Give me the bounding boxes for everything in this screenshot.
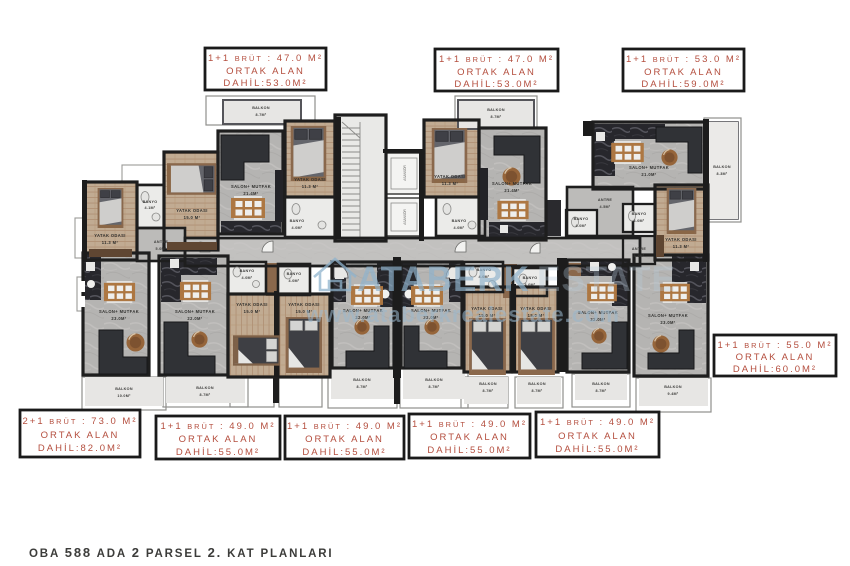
- svg-text:BALKON: BALKON: [353, 378, 371, 382]
- svg-text:ORTAK ALAN: ORTAK ALAN: [644, 67, 723, 78]
- svg-text:4.0M²: 4.0M²: [576, 224, 587, 228]
- svg-text:BANYO: BANYO: [632, 212, 647, 216]
- svg-text:BALKON: BALKON: [196, 386, 214, 390]
- svg-text:8.7M²: 8.7M²: [491, 115, 502, 119]
- svg-text:8.7M²: 8.7M²: [357, 385, 368, 389]
- svg-text:1+1 BRÜT : 49.0 M²: 1+1 BRÜT : 49.0 M²: [287, 421, 402, 432]
- svg-text:ORTAK ALAN: ORTAK ALAN: [41, 430, 120, 441]
- svg-text:BANYO: BANYO: [574, 217, 589, 221]
- svg-text:8.7M²: 8.7M²: [483, 389, 494, 393]
- svg-text:DAHİL:53.0M²: DAHİL:53.0M²: [223, 78, 307, 89]
- svg-text:2+1 BRÜT : 73.0 M²: 2+1 BRÜT : 73.0 M²: [22, 416, 137, 427]
- svg-text:DAHİL:59.0M²: DAHİL:59.0M²: [641, 79, 725, 90]
- svg-text:1+1 BRÜT : 47.0 M²: 1+1 BRÜT : 47.0 M²: [439, 54, 554, 65]
- svg-text:DAHİL:55.0M²: DAHİL:55.0M²: [555, 444, 639, 455]
- svg-text:DAHİL:82.0M²: DAHİL:82.0M²: [38, 443, 122, 454]
- svg-text:BALKON: BALKON: [664, 385, 682, 389]
- svg-text:www.ataberkrealestate.com: www.ataberkrealestate.com: [305, 302, 620, 327]
- svg-text:4.0M²: 4.0M²: [292, 226, 303, 230]
- svg-text:BALKON: BALKON: [425, 378, 443, 382]
- svg-text:ORTAK ALAN: ORTAK ALAN: [179, 434, 258, 445]
- svg-text:1+1 BRÜT : 49.0 M²: 1+1 BRÜT : 49.0 M²: [540, 417, 655, 428]
- svg-text:1+1 BRÜT : 47.0 M²: 1+1 BRÜT : 47.0 M²: [208, 53, 323, 64]
- svg-text:8.7M²: 8.7M²: [256, 113, 267, 117]
- svg-text:BALKON: BALKON: [713, 165, 731, 169]
- svg-text:OBA 588 ADA 2 PARSEL 2. KAT PL: OBA 588 ADA 2 PARSEL 2. KAT PLANLARI: [29, 545, 333, 560]
- svg-text:DAHİL:55.0M²: DAHİL:55.0M²: [427, 445, 511, 456]
- svg-text:DAHİL:55.0M²: DAHİL:55.0M²: [176, 447, 260, 458]
- svg-text:ANTRE: ANTRE: [632, 247, 646, 251]
- svg-text:ATABERK: ATABERK: [357, 260, 530, 299]
- svg-text:YATAK ODASI: YATAK ODASI: [434, 174, 466, 179]
- svg-text:YATAK ODASI: YATAK ODASI: [236, 302, 268, 307]
- svg-text:ORTAK ALAN: ORTAK ALAN: [305, 434, 384, 445]
- svg-text:4.1M²: 4.1M²: [145, 206, 156, 210]
- svg-text:DAHİL:53.0M²: DAHİL:53.0M²: [454, 79, 538, 90]
- svg-text:ORTAK ALAN: ORTAK ALAN: [558, 431, 637, 442]
- svg-text:SALON+ MUTFAK: SALON+ MUTFAK: [648, 313, 688, 318]
- svg-text:BANYO: BANYO: [287, 272, 302, 276]
- svg-text:22.0M²: 22.0M²: [187, 316, 202, 321]
- svg-text:21.4M²: 21.4M²: [243, 191, 258, 196]
- svg-text:11.3 M²: 11.3 M²: [302, 184, 319, 189]
- svg-text:23.0M²: 23.0M²: [111, 316, 126, 321]
- svg-text:ESTATE: ESTATE: [537, 260, 676, 299]
- svg-text:15.0 M²: 15.0 M²: [184, 215, 201, 220]
- svg-text:1+1 BRÜT : 55.0 M²: 1+1 BRÜT : 55.0 M²: [717, 340, 832, 351]
- svg-text:YATAK ODASI: YATAK ODASI: [665, 237, 697, 242]
- svg-text:8.7M²: 8.7M²: [596, 389, 607, 393]
- svg-text:3.1M²: 3.1M²: [634, 254, 645, 258]
- svg-text:SALON+ MUTFAK: SALON+ MUTFAK: [99, 309, 139, 314]
- svg-text:1+1 BRÜT : 49.0 M²: 1+1 BRÜT : 49.0 M²: [160, 421, 275, 432]
- svg-text:ANTRE: ANTRE: [598, 198, 612, 202]
- svg-text:YATAK ODASI: YATAK ODASI: [94, 233, 126, 238]
- svg-text:BALKON: BALKON: [252, 106, 270, 110]
- svg-text:4.0M²: 4.0M²: [242, 276, 253, 280]
- svg-text:BANYO: BANYO: [290, 219, 305, 223]
- svg-text:8.3M²: 8.3M²: [717, 172, 728, 176]
- svg-text:BALKON: BALKON: [592, 382, 610, 386]
- svg-text:SALON+ MUTFAK: SALON+ MUTFAK: [231, 184, 271, 189]
- svg-text:1+1 BRÜT : 53.0 M²: 1+1 BRÜT : 53.0 M²: [626, 54, 741, 65]
- svg-text:11.3 M²: 11.3 M²: [102, 240, 119, 245]
- svg-text:SALON+ MUTFAK: SALON+ MUTFAK: [629, 165, 669, 170]
- svg-text:4.5M²: 4.5M²: [600, 205, 611, 209]
- svg-text:ASANSÖR: ASANSÖR: [403, 165, 407, 181]
- svg-text:ORTAK ALAN: ORTAK ALAN: [457, 67, 536, 78]
- svg-text:21.0M²: 21.0M²: [641, 172, 656, 177]
- svg-text:SALON+ MUTFAK: SALON+ MUTFAK: [492, 181, 532, 186]
- svg-text:YATAK ODASI: YATAK ODASI: [176, 208, 208, 213]
- svg-text:8.7M²: 8.7M²: [200, 393, 211, 397]
- svg-text:BANYO: BANYO: [240, 269, 255, 273]
- svg-text:5.0M²: 5.0M²: [156, 247, 167, 251]
- svg-text:ANTRE: ANTRE: [154, 240, 168, 244]
- svg-text:23.0M²: 23.0M²: [660, 320, 675, 325]
- svg-text:11.3 M²: 11.3 M²: [673, 244, 690, 249]
- svg-text:4.0M²: 4.0M²: [634, 219, 645, 223]
- svg-text:4.0M²: 4.0M²: [454, 226, 465, 230]
- svg-text:BALKON: BALKON: [115, 387, 133, 391]
- svg-text:BALKON: BALKON: [479, 382, 497, 386]
- svg-text:BALKON: BALKON: [528, 382, 546, 386]
- svg-text:BALKON: BALKON: [487, 108, 505, 112]
- svg-text:ORTAK ALAN: ORTAK ALAN: [430, 432, 509, 443]
- svg-text:11.3 M²: 11.3 M²: [442, 181, 459, 186]
- svg-text:SALON+ MUTFAK: SALON+ MUTFAK: [175, 309, 215, 314]
- svg-text:9.4M²: 9.4M²: [668, 392, 679, 396]
- svg-text:10.0M²: 10.0M²: [117, 394, 131, 398]
- svg-text:BANYO: BANYO: [452, 219, 467, 223]
- svg-text:DAHİL:60.0M²: DAHİL:60.0M²: [733, 364, 817, 375]
- svg-text:15.0 M²: 15.0 M²: [244, 309, 261, 314]
- svg-text:8.7M²: 8.7M²: [429, 385, 440, 389]
- svg-text:ORTAK ALAN: ORTAK ALAN: [736, 352, 815, 363]
- svg-text:DAHİL:55.0M²: DAHİL:55.0M²: [302, 447, 386, 458]
- svg-text:1+1 BRÜT : 49.0 M²: 1+1 BRÜT : 49.0 M²: [412, 419, 527, 430]
- svg-text:8.7M²: 8.7M²: [532, 389, 543, 393]
- svg-text:ASANSÖR: ASANSÖR: [403, 209, 407, 225]
- svg-text:BANYO: BANYO: [143, 200, 158, 204]
- svg-text:ORTAK ALAN: ORTAK ALAN: [226, 66, 305, 77]
- svg-text:YATAK ODASI: YATAK ODASI: [294, 177, 326, 182]
- svg-text:4.0M²: 4.0M²: [289, 279, 300, 283]
- svg-text:21.4M²: 21.4M²: [504, 188, 519, 193]
